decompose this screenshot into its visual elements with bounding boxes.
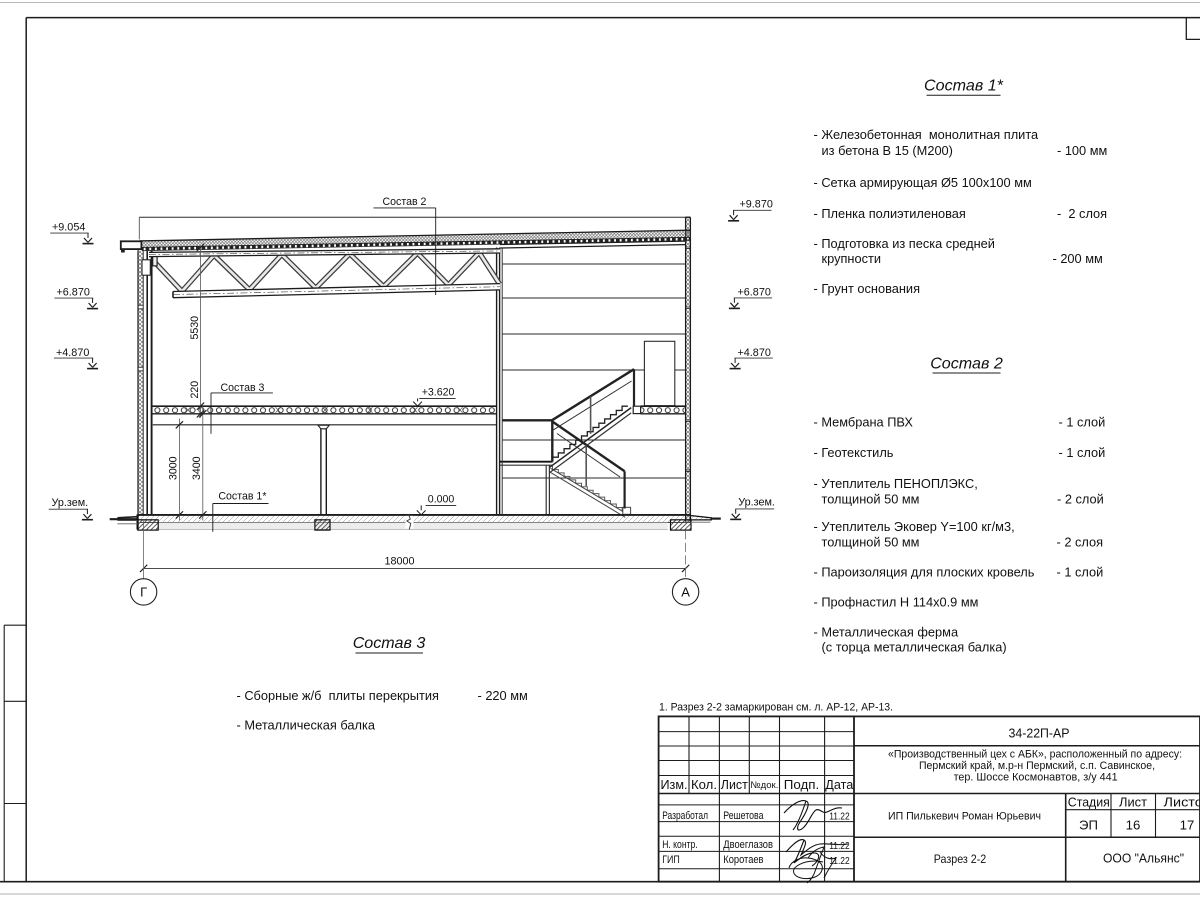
svg-text:17: 17 [1180,817,1195,832]
svg-text:- Утеплитель ПЕНОПЛЭКС,: - Утеплитель ПЕНОПЛЭКС, [814,476,978,491]
svg-text:3400: 3400 [191,456,203,480]
svg-text:Решетова: Решетова [723,810,763,822]
svg-text:- 2 слоя: - 2 слоя [1057,534,1104,549]
svg-text:А: А [681,584,690,599]
svg-text:толщиной 50 мм: толщиной 50 мм [822,492,920,507]
svg-text:11.22: 11.22 [829,856,850,867]
svg-text:ООО "Альянс": ООО "Альянс" [1103,851,1184,866]
svg-text:Двоеглазов: Двоеглазов [723,839,773,851]
svg-text:- Утеплитель Эковер Y=100 кг/м: - Утеплитель Эковер Y=100 кг/м3, [814,519,1015,534]
svg-text:из бетона В 15 (М200): из бетона В 15 (М200) [822,143,953,158]
svg-text:11.22: 11.22 [829,811,850,822]
svg-text:Изм.: Изм. [661,777,688,792]
svg-text:Разрез 2-2: Разрез 2-2 [934,853,987,866]
svg-text:Подп.: Подп. [784,777,820,792]
svg-text:1. Разрез 2-2 замаркирован см.: 1. Разрез 2-2 замаркирован см. л. АР-12,… [659,702,893,714]
svg-text:- Профнастил Н 114х0.9 мм: - Профнастил Н 114х0.9 мм [814,594,979,609]
svg-text:«Производственный цех с АБК»,: «Производственный цех с АБК», расположен… [888,748,1182,760]
svg-text:- Сетка армирующая Ø5 100х100: - Сетка армирующая Ø5 100х100 мм [814,175,1032,190]
svg-text:толщиной 50 мм: толщиной 50 мм [822,534,920,549]
svg-text:5530: 5530 [189,316,201,340]
svg-text:- 220 мм: - 220 мм [478,688,528,703]
svg-text:+9.054: +9.054 [52,222,85,234]
svg-text:- 1 слой: - 1 слой [1059,414,1106,429]
svg-text:Дата: Дата [825,777,854,792]
svg-text:№док.: №док. [750,780,778,791]
svg-text:3000: 3000 [168,456,180,480]
svg-text:Коротаев: Коротаев [723,854,764,866]
svg-text:- Железобетонная монолитная п: - Железобетонная монолитная плита [814,127,1040,142]
svg-text:тер. Шоссе Космонавтов, з/у 44: тер. Шоссе Космонавтов, з/у 441 [954,771,1118,783]
svg-text:+4.870: +4.870 [738,347,771,359]
svg-text:Лист: Лист [1119,796,1147,810]
svg-text:- 1 слой: - 1 слой [1057,564,1104,579]
svg-text:Разработал: Разработал [662,810,708,822]
svg-text:+4.870: +4.870 [56,347,89,359]
svg-text:Состав 3: Состав 3 [221,382,265,394]
svg-text:Состав 1*: Состав 1* [924,77,1004,95]
svg-text:+6.870: +6.870 [738,287,771,299]
svg-text:- Грунт основания: - Грунт основания [814,281,921,296]
svg-text:Ур.зем.: Ур.зем. [52,497,89,509]
svg-text:+3.620: +3.620 [422,386,455,398]
svg-text:- 200 мм: - 200 мм [1053,251,1103,266]
svg-text:ИП Пилькевич Роман Юрьевич: ИП Пилькевич Роман Юрьевич [888,811,1041,823]
svg-text:16: 16 [1126,817,1141,832]
svg-text:220: 220 [189,381,201,399]
svg-text:(с торца металлическая балка): (с торца металлическая балка) [822,640,1007,655]
svg-text:Состав 2: Состав 2 [383,196,427,208]
svg-text:- 100 мм: - 100 мм [1057,143,1107,158]
svg-text:Пермский край, м.р-н Пермский,: Пермский край, м.р-н Пермский, с.п. Сави… [919,760,1155,772]
svg-text:- 2 слой: - 2 слой [1057,492,1104,507]
svg-text:0.000: 0.000 [428,493,455,505]
svg-text:- Металлическая ферма: - Металлическая ферма [814,624,959,639]
svg-text:- Пленка полиэтиленовая: - Пленка полиэтиленовая [814,206,966,221]
svg-text:+6.870: +6.870 [57,287,90,299]
svg-text:- 2 слоя: - 2 слоя [1057,206,1107,221]
svg-text:- Подготовка из песка средней: - Подготовка из песка средней [814,236,995,251]
svg-text:ГИП: ГИП [662,854,680,866]
svg-text:Состав 1*: Состав 1* [218,491,266,503]
svg-text:ЭП: ЭП [1079,817,1098,832]
svg-text:- Сборные ж/б плиты перекрыти: - Сборные ж/б плиты перекрытия [237,688,439,703]
svg-text:Стадия: Стадия [1068,796,1110,810]
svg-text:- Металлическая балка: - Металлическая балка [237,717,376,732]
svg-text:Г: Г [140,584,147,599]
svg-text:крупности: крупности [822,251,882,266]
svg-text:- 1 слой: - 1 слой [1059,445,1106,460]
svg-text:Листов: Листов [1164,796,1200,810]
svg-text:Н. контр.: Н. контр. [662,839,698,851]
svg-text:34-22П-АР: 34-22П-АР [1009,726,1070,741]
svg-text:Кол.: Кол. [691,777,717,792]
svg-text:- Геотекстиль: - Геотекстиль [814,445,894,460]
svg-text:Состав 3: Состав 3 [353,634,426,652]
svg-text:- Пароизоляция для плоских кро: - Пароизоляция для плоских кровель [814,564,1035,579]
svg-text:- Мембрана ПВХ: - Мембрана ПВХ [814,414,914,429]
svg-text:11.22: 11.22 [829,841,850,852]
svg-text:Состав 2: Состав 2 [930,354,1003,372]
svg-text:Лист: Лист [721,777,748,792]
svg-text:Ур.зем.: Ур.зем. [738,497,775,509]
svg-text:18000: 18000 [384,556,414,568]
svg-text:+9.870: +9.870 [740,199,773,211]
